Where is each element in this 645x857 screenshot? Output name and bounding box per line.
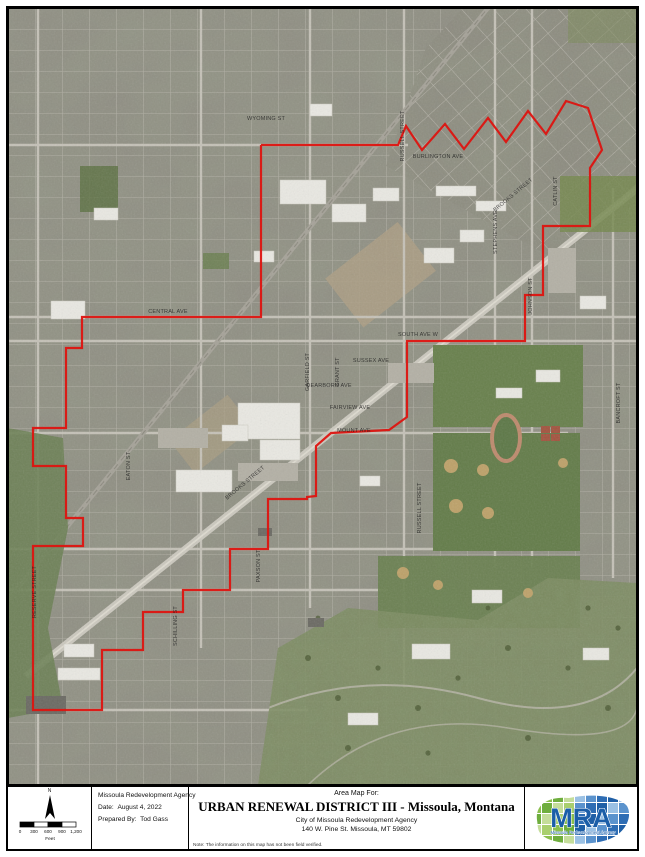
street-label: BURLINGTON AVE xyxy=(413,154,464,160)
map-subtitle-address: 140 W. Pine St. Missoula, MT 59802 xyxy=(189,826,524,833)
street-label: SUSSEX AVE xyxy=(353,358,389,364)
map-subtitle-agency: City of Missoula Redevelopment Agency xyxy=(189,817,524,824)
scale-segment xyxy=(20,822,34,827)
logo-tile xyxy=(608,836,618,846)
street-label: MOUNT AVE xyxy=(337,428,371,434)
street-label: DEARBORN AVE xyxy=(306,383,352,389)
logo-tile xyxy=(531,814,541,824)
page-frame: WYOMING STRUSSELL STREETBURLINGTON AVECA… xyxy=(6,6,639,851)
logo-tile xyxy=(542,836,552,846)
logo-tile xyxy=(553,836,563,846)
logo-tile xyxy=(597,836,607,846)
street-label: RUSSELL STREET xyxy=(400,110,406,161)
logo-tile xyxy=(553,792,563,802)
logo-tile xyxy=(619,825,629,835)
logo-tile xyxy=(531,825,541,835)
street-label: SOUTH AVE W xyxy=(398,332,439,338)
street-label: FAIRVIEW AVE xyxy=(330,405,371,411)
logo-tile xyxy=(575,836,585,846)
scale-tick: 1,200 xyxy=(70,829,82,834)
logo-tile xyxy=(608,792,618,802)
logo-tile xyxy=(542,792,552,802)
north-arrow-icon xyxy=(38,794,62,820)
aerial-photo-map: WYOMING STRUSSELL STREETBURLINGTON AVECA… xyxy=(8,8,637,785)
scale-segment xyxy=(34,822,48,827)
info-cell: Missoula Redevelopment Agency Date: Augu… xyxy=(92,787,189,849)
street-label: RESERVE STREET xyxy=(32,565,38,618)
street-label: RUSSELL STREET xyxy=(417,482,423,533)
logo-subtext: Missoula Redevelopment Agency xyxy=(551,830,617,835)
map-note: Note: The information on this map has no… xyxy=(193,843,323,848)
street-label: SCHILLING ST xyxy=(173,606,179,646)
map-title: URBAN RENEWAL DISTRICT III - Missoula, M… xyxy=(189,799,524,815)
mra-logo: MRA Missoula Redevelopment Agency xyxy=(529,790,633,846)
street-label: JOHNSON ST xyxy=(528,277,534,315)
title-block: N 03006009001,200 Feet Missoula Redevelo… xyxy=(8,785,637,849)
logo-tile xyxy=(619,836,629,846)
logo-tile xyxy=(597,792,607,802)
scale-tick: 0 xyxy=(18,829,21,834)
logo-tile xyxy=(586,792,596,802)
street-label: PAXSON ST xyxy=(256,549,262,582)
logo-tile xyxy=(531,836,541,846)
street-label: EATON ST xyxy=(126,451,132,480)
street-label: BANCROFT ST xyxy=(616,382,622,423)
logo-cell: MRA Missoula Redevelopment Agency xyxy=(525,787,637,849)
scale-tick: 600 xyxy=(44,829,52,834)
scale-segment xyxy=(48,822,62,827)
scale-bar: 03006009001,200 Feet xyxy=(14,820,86,842)
logo-tile xyxy=(531,792,541,802)
agency-name: Missoula Redevelopment Agency xyxy=(98,792,184,799)
logo-tile xyxy=(586,836,596,846)
scale-unit: Feet xyxy=(45,836,55,842)
logo-tile xyxy=(619,803,629,813)
area-map-for: Area Map For: xyxy=(189,790,524,797)
date-row: Date: August 4, 2022 xyxy=(98,804,184,811)
scale-tick: 900 xyxy=(58,829,66,834)
street-label: CATLIN ST xyxy=(553,176,559,206)
street-label: WYOMING ST xyxy=(247,116,285,122)
logo-tile xyxy=(564,836,574,846)
scale-north-cell: N 03006009001,200 Feet xyxy=(8,787,92,849)
aerial-map: WYOMING STRUSSELL STREETBURLINGTON AVECA… xyxy=(8,8,637,785)
map-title-cell: Area Map For: URBAN RENEWAL DISTRICT III… xyxy=(189,787,525,849)
logo-tile xyxy=(619,792,629,802)
logo-tile xyxy=(531,803,541,813)
prepared-row: Prepared By: Tod Gass xyxy=(98,816,184,823)
street-label: STEPHENS AVE xyxy=(493,210,499,254)
logo-tile xyxy=(619,814,629,824)
scale-tick: 300 xyxy=(30,829,38,834)
logo-text: MRA xyxy=(550,803,612,833)
scale-segment xyxy=(62,822,76,827)
street-label: CENTRAL AVE xyxy=(148,309,188,315)
logo-tile xyxy=(575,792,585,802)
logo-tile xyxy=(564,792,574,802)
